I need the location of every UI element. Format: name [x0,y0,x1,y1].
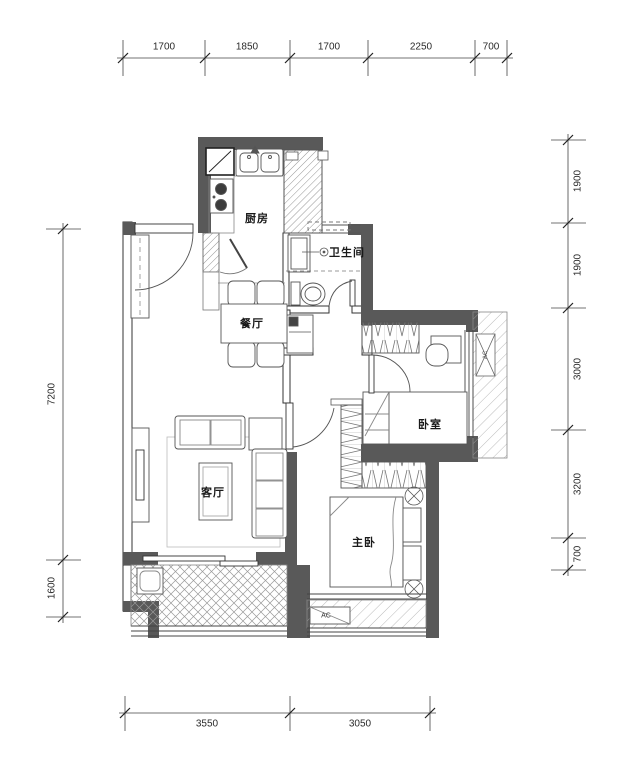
bathroom-bottom-wall-stub [352,306,362,313]
vent-icon [286,152,298,160]
toilet [291,282,325,305]
dim-top-3: 2250 [410,42,432,53]
master-wardrobe-horizontal [362,462,426,488]
dim-right-2: 3000 [573,358,584,380]
floor-plan-canvas: 厨房 卫生间 餐厅 客厅 卧室 主卧 AC AC 1700 1850 1700 … [0,0,630,761]
balcony-washer [137,568,163,594]
dim-right-1: 1900 [573,254,584,276]
fridge [206,148,234,175]
room-label-living: 客厅 [201,484,225,500]
kitchen-sink [236,146,283,176]
room-label-dining: 餐厅 [240,315,264,331]
dim-right [551,134,586,576]
balcony-master-column [287,565,310,638]
dim-top-4: 700 [483,42,500,53]
bathroom-door [329,280,355,306]
ac-unit-side-label: AC [483,351,489,359]
room-label-bedroom: 卧室 [418,416,442,432]
balcony-wall-right-stub [256,552,287,565]
bedroom-door [369,355,410,393]
dim-top-2: 1700 [318,42,340,53]
stove [210,179,233,213]
master-door [286,403,334,449]
entry-cabinet-hatch [203,233,219,272]
room-label-bathroom: 卫生间 [329,244,365,260]
entry-cabinet-lower [203,272,219,310]
dim-right-0: 1900 [573,170,584,192]
floor-plan-drawing [0,0,630,761]
dim-right-3: 3200 [573,473,584,495]
bedroom-wardrobe [362,322,419,353]
dim-left [46,223,81,623]
bedside-units [403,508,421,580]
entry-wall-stub [123,222,136,235]
room-label-kitchen: 厨房 [245,210,269,226]
dim-top [117,40,513,76]
dim-bottom [119,696,436,731]
single-bed [363,392,467,444]
duct-shaft-hatch [284,150,322,233]
vent-icon [318,151,328,160]
shoe-cabinet [131,235,149,318]
desk-and-chair [426,336,461,366]
balcony [137,568,163,594]
ac-unit-label: AC [321,613,331,620]
ac-platform-bottom-edge [307,628,426,636]
master-right-wall [426,458,439,638]
entry [131,224,193,318]
bathroom-right-wall [361,224,373,312]
living-furniture [132,416,287,547]
dim-bottom-1: 3050 [349,719,371,730]
room-label-master: 主卧 [352,534,376,550]
wardrobe-cap [331,399,362,405]
master-wardrobe-vertical [341,405,362,488]
tv-cabinet [132,428,149,522]
nightstand-plants [405,487,423,598]
dim-left-0: 7200 [47,383,58,405]
balcony-sliding-door [143,556,258,566]
side-table [249,418,282,450]
dim-bottom-0: 3550 [196,719,218,730]
bedroom-master-divider [361,444,467,462]
kitchen-door [220,239,247,274]
dim-right-4: 700 [573,546,584,563]
dim-top-0: 1700 [153,42,175,53]
dim-left-1: 1600 [47,577,58,599]
washing-machine [287,315,313,353]
shower [288,235,310,272]
sofa [175,416,245,449]
dim-top-1: 1850 [236,42,258,53]
corner-sofa [252,449,287,538]
